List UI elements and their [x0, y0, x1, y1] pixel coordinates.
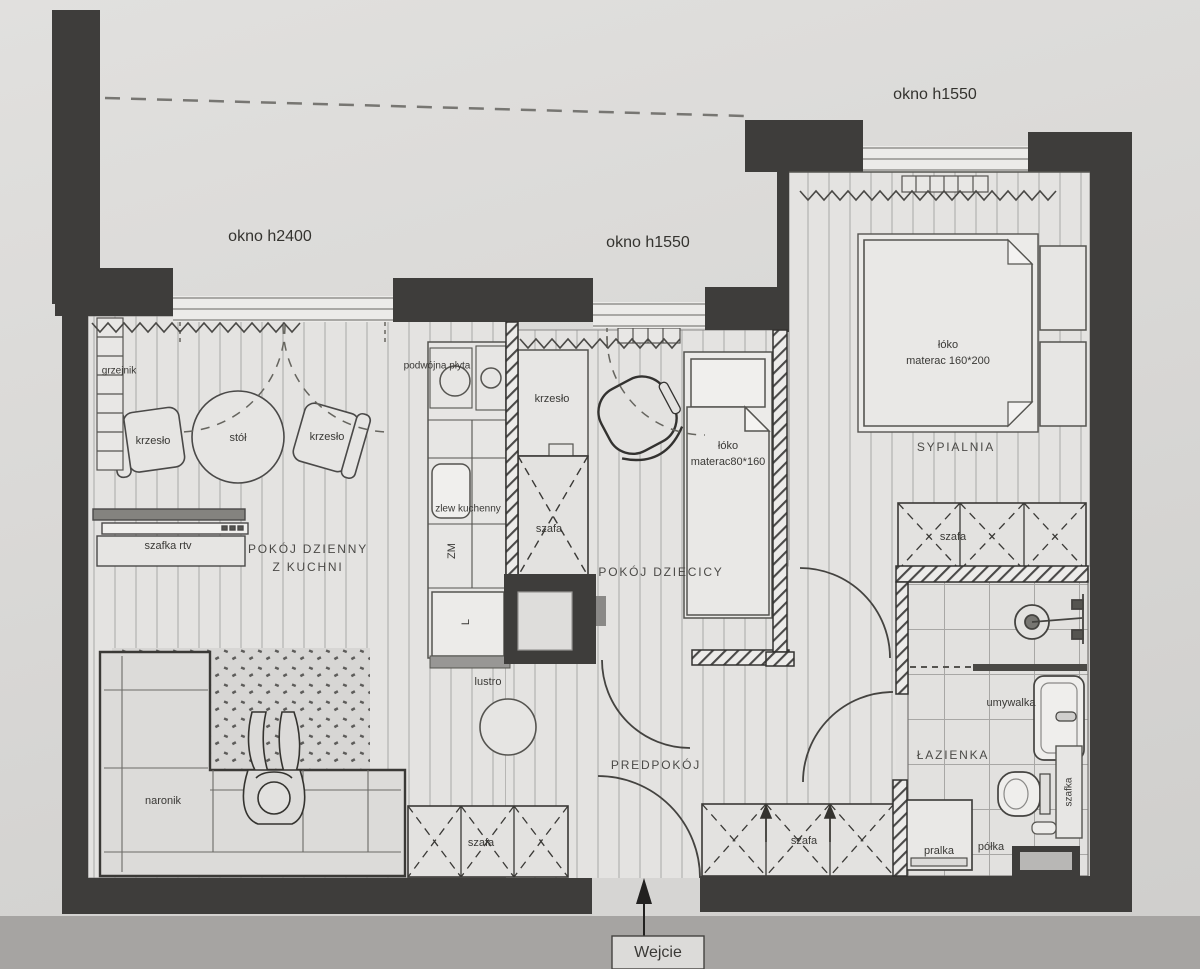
label-bedroom-wardrobe: szafa [940, 531, 966, 543]
nightstand-bottom [1040, 342, 1086, 426]
label-living-room-1: POKÓJ DZIENNY [248, 542, 368, 556]
label-fridge: L [460, 619, 472, 625]
label-hall-wardrobe-right: szafa [791, 835, 817, 847]
washing-machine [906, 800, 972, 870]
mirror [480, 699, 536, 755]
label-chair-left: krzesło [136, 435, 171, 447]
label-children-bed-2: materac80*160 [691, 456, 766, 468]
label-tv-cabinet: szafka rtv [144, 540, 191, 552]
label-shelf: półka [978, 841, 1004, 853]
label-chair-right: krzesło [310, 431, 345, 443]
radiator-living [97, 318, 123, 470]
kitchen-strip [428, 342, 506, 658]
label-radiator: grzejnik [102, 366, 136, 377]
label-living-room-2: Z KUCHNI [272, 560, 343, 574]
pillow [691, 359, 765, 407]
bathroom-shaft [1012, 846, 1080, 876]
label-children-chair: krzesło [535, 393, 570, 405]
bedroom-wardrobe [898, 503, 1086, 570]
label-corner-sofa: naronik [145, 795, 181, 807]
label-okno-bedroom: okno h1550 [893, 86, 977, 104]
label-hallway: PREDPOKÓJ [611, 758, 701, 772]
label-kitchen-sink: zlew kuchenny [435, 504, 501, 515]
label-children-bed-1: łóko [718, 440, 738, 452]
label-bedroom-bed-2: materac 160*200 [906, 355, 990, 367]
console-shelf [430, 656, 510, 668]
bed-mattress [864, 240, 1032, 426]
radiator-bedroom [902, 176, 988, 192]
label-washbasin: umywalka [987, 697, 1036, 709]
toilet [998, 772, 1050, 816]
ventilation-shaft [504, 574, 606, 664]
children-wardrobe [518, 444, 588, 576]
label-mirror: lustro [475, 676, 502, 688]
label-washing-machine: pralka [924, 845, 954, 857]
balcony-outline [105, 98, 745, 116]
window-children [593, 302, 705, 328]
label-hob: podwójna płyta [404, 361, 471, 372]
label-okno-living: okno h2400 [228, 228, 312, 246]
photo-bottom-shadow [0, 916, 1200, 969]
window-bedroom [863, 146, 1028, 172]
label-table: stół [229, 432, 246, 444]
label-dishwasher: ZM [446, 543, 458, 559]
window-living [173, 296, 393, 322]
label-corridor-wardrobe: szafa [536, 523, 562, 535]
shower-screen [973, 664, 1087, 671]
label-okno-children: okno h1550 [606, 234, 690, 252]
toilet-accessory [1032, 822, 1056, 834]
label-bedroom-bed-1: łóko [938, 339, 958, 351]
nightstand-top [1040, 246, 1086, 330]
floor-plan-drawing [0, 0, 1200, 969]
label-bathroom: ŁAZIENKA [917, 748, 989, 762]
floor-plan-photo: okno h1550 okno h2400 okno h1550 grzejni… [0, 0, 1200, 969]
label-entrance: Wejcie [634, 944, 682, 962]
label-children-room: POKÓJ DZIECICY [598, 565, 723, 579]
tv-cabinet [93, 509, 248, 566]
label-bedroom: SYPIALNIA [917, 440, 995, 454]
label-hall-wardrobe-left: szafa [468, 837, 494, 849]
label-bath-cabinet: szafka [1064, 778, 1075, 807]
